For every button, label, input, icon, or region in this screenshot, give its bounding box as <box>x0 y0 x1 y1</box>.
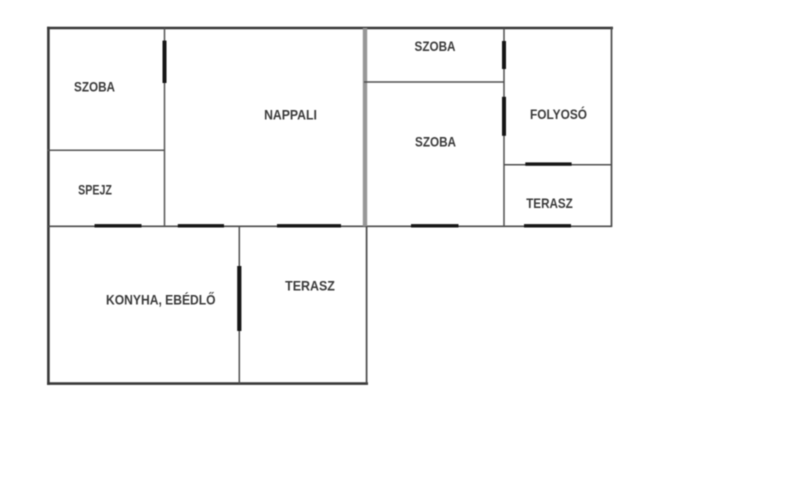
svg-text:SZOBA: SZOBA <box>415 38 456 54</box>
svg-text:FOLYOSÓ: FOLYOSÓ <box>530 105 587 122</box>
svg-text:NAPPALI: NAPPALI <box>264 107 317 123</box>
svg-text:TERASZ: TERASZ <box>526 195 573 211</box>
svg-text:SPEJZ: SPEJZ <box>78 182 112 198</box>
svg-text:TERASZ: TERASZ <box>285 278 335 294</box>
svg-text:KONYHA, EBÉDLŐ: KONYHA, EBÉDLŐ <box>106 291 216 308</box>
svg-text:SZOBA: SZOBA <box>74 79 115 95</box>
svg-text:SZOBA: SZOBA <box>415 134 456 150</box>
